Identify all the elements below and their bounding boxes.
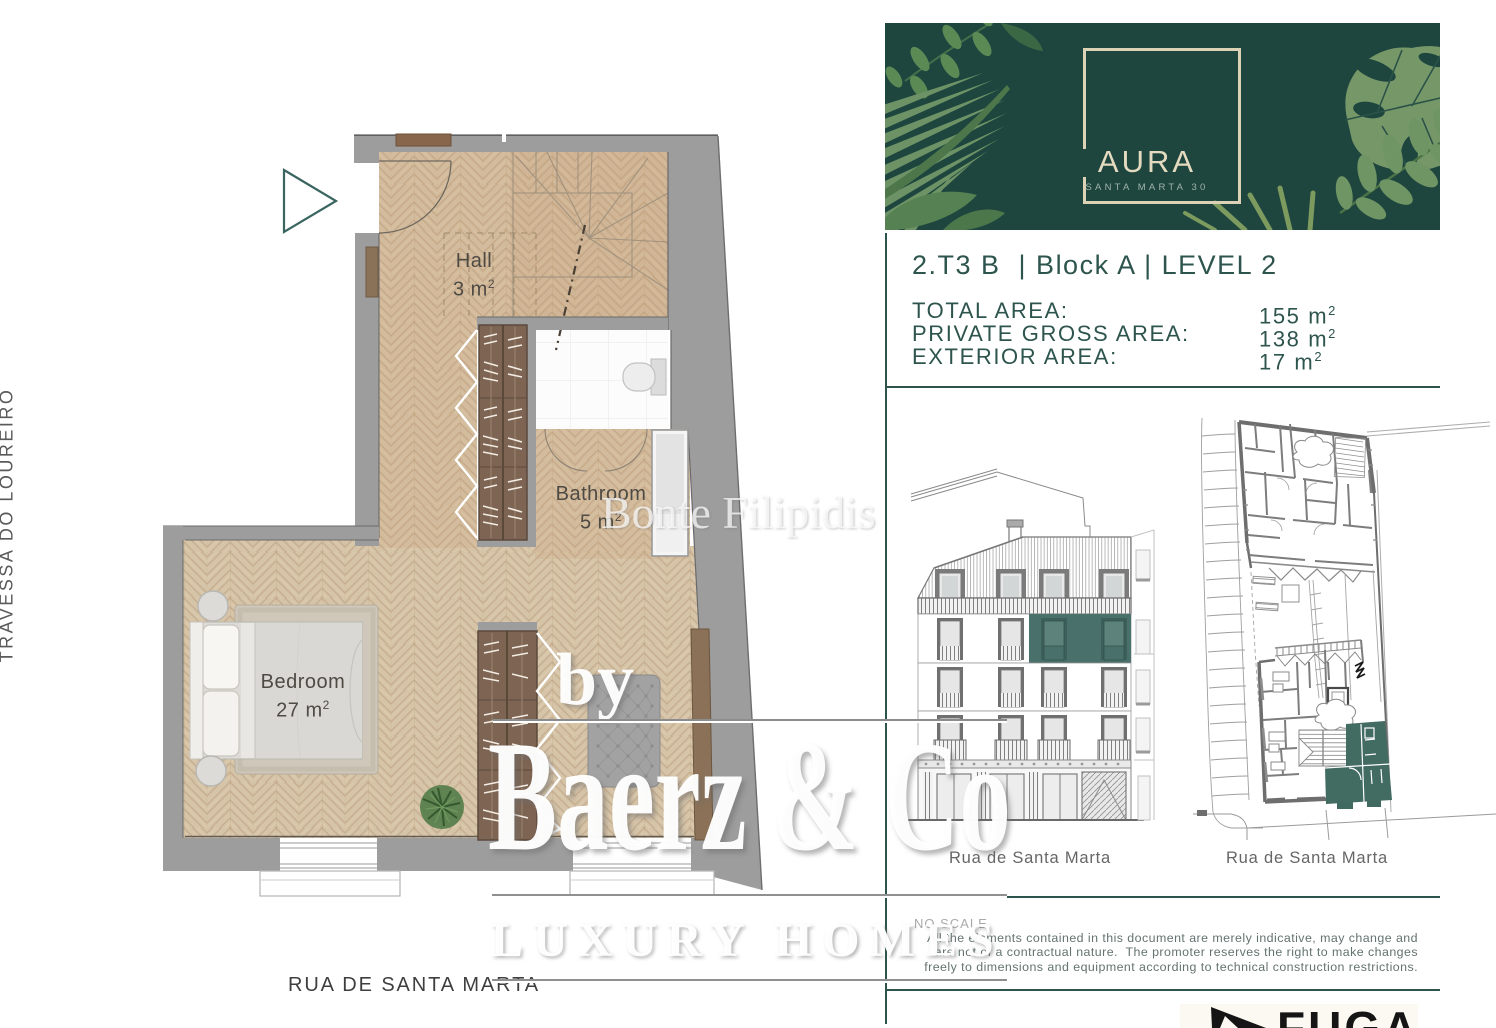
svg-text:FUGA: FUGA — [1277, 1004, 1419, 1028]
